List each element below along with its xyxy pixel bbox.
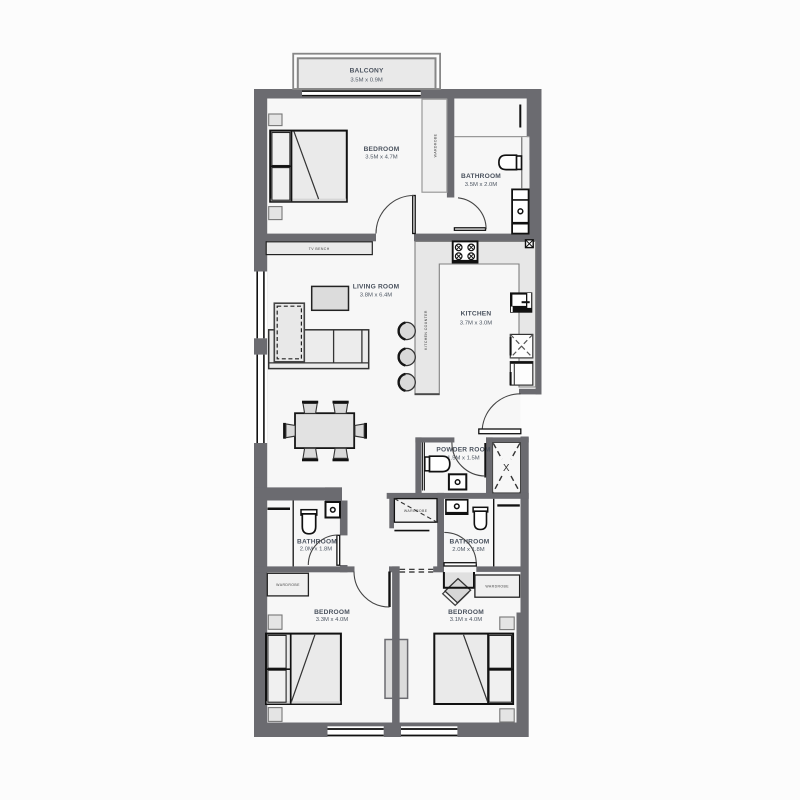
svg-text:WARDROBE: WARDROBE bbox=[404, 509, 428, 513]
svg-text:3.5M x 0.9M: 3.5M x 0.9M bbox=[350, 78, 383, 84]
svg-text:TV BENCH: TV BENCH bbox=[309, 247, 330, 251]
svg-text:WARDROBE: WARDROBE bbox=[485, 584, 509, 588]
svg-text:WARDROBE: WARDROBE bbox=[276, 583, 300, 587]
svg-text:3.5M x 2.0M: 3.5M x 2.0M bbox=[465, 182, 498, 188]
svg-text:BEDROOM: BEDROOM bbox=[364, 146, 400, 153]
svg-text:KITCHEN: KITCHEN bbox=[461, 310, 492, 317]
svg-text:X: X bbox=[503, 463, 510, 474]
svg-text:BATHROOM: BATHROOM bbox=[461, 173, 501, 180]
svg-text:3.8M x 6.4M: 3.8M x 6.4M bbox=[360, 293, 393, 299]
svg-text:1.5M x 1.5M: 1.5M x 1.5M bbox=[447, 455, 480, 461]
svg-text:3.5M x 4.7M: 3.5M x 4.7M bbox=[365, 154, 398, 160]
svg-text:BEDROOM: BEDROOM bbox=[448, 609, 484, 616]
svg-text:BEDROOM: BEDROOM bbox=[314, 609, 350, 616]
svg-text:POWDER ROOM: POWDER ROOM bbox=[436, 446, 491, 453]
svg-text:3.1M x 4.0M: 3.1M x 4.0M bbox=[450, 617, 483, 623]
svg-text:2.0M x 1.8M: 2.0M x 1.8M bbox=[300, 546, 333, 552]
svg-text:3.7M x 3.0M: 3.7M x 3.0M bbox=[460, 320, 493, 326]
svg-text:WARDROBE: WARDROBE bbox=[433, 133, 437, 157]
svg-text:BALCONY: BALCONY bbox=[350, 68, 384, 75]
svg-text:2.0M x 1.8M: 2.0M x 1.8M bbox=[452, 547, 485, 553]
svg-text:KITCHEN COUNTER: KITCHEN COUNTER bbox=[424, 310, 428, 350]
svg-text:3.3M x 4.0M: 3.3M x 4.0M bbox=[316, 617, 349, 623]
svg-text:LIVING ROOM: LIVING ROOM bbox=[353, 284, 400, 291]
